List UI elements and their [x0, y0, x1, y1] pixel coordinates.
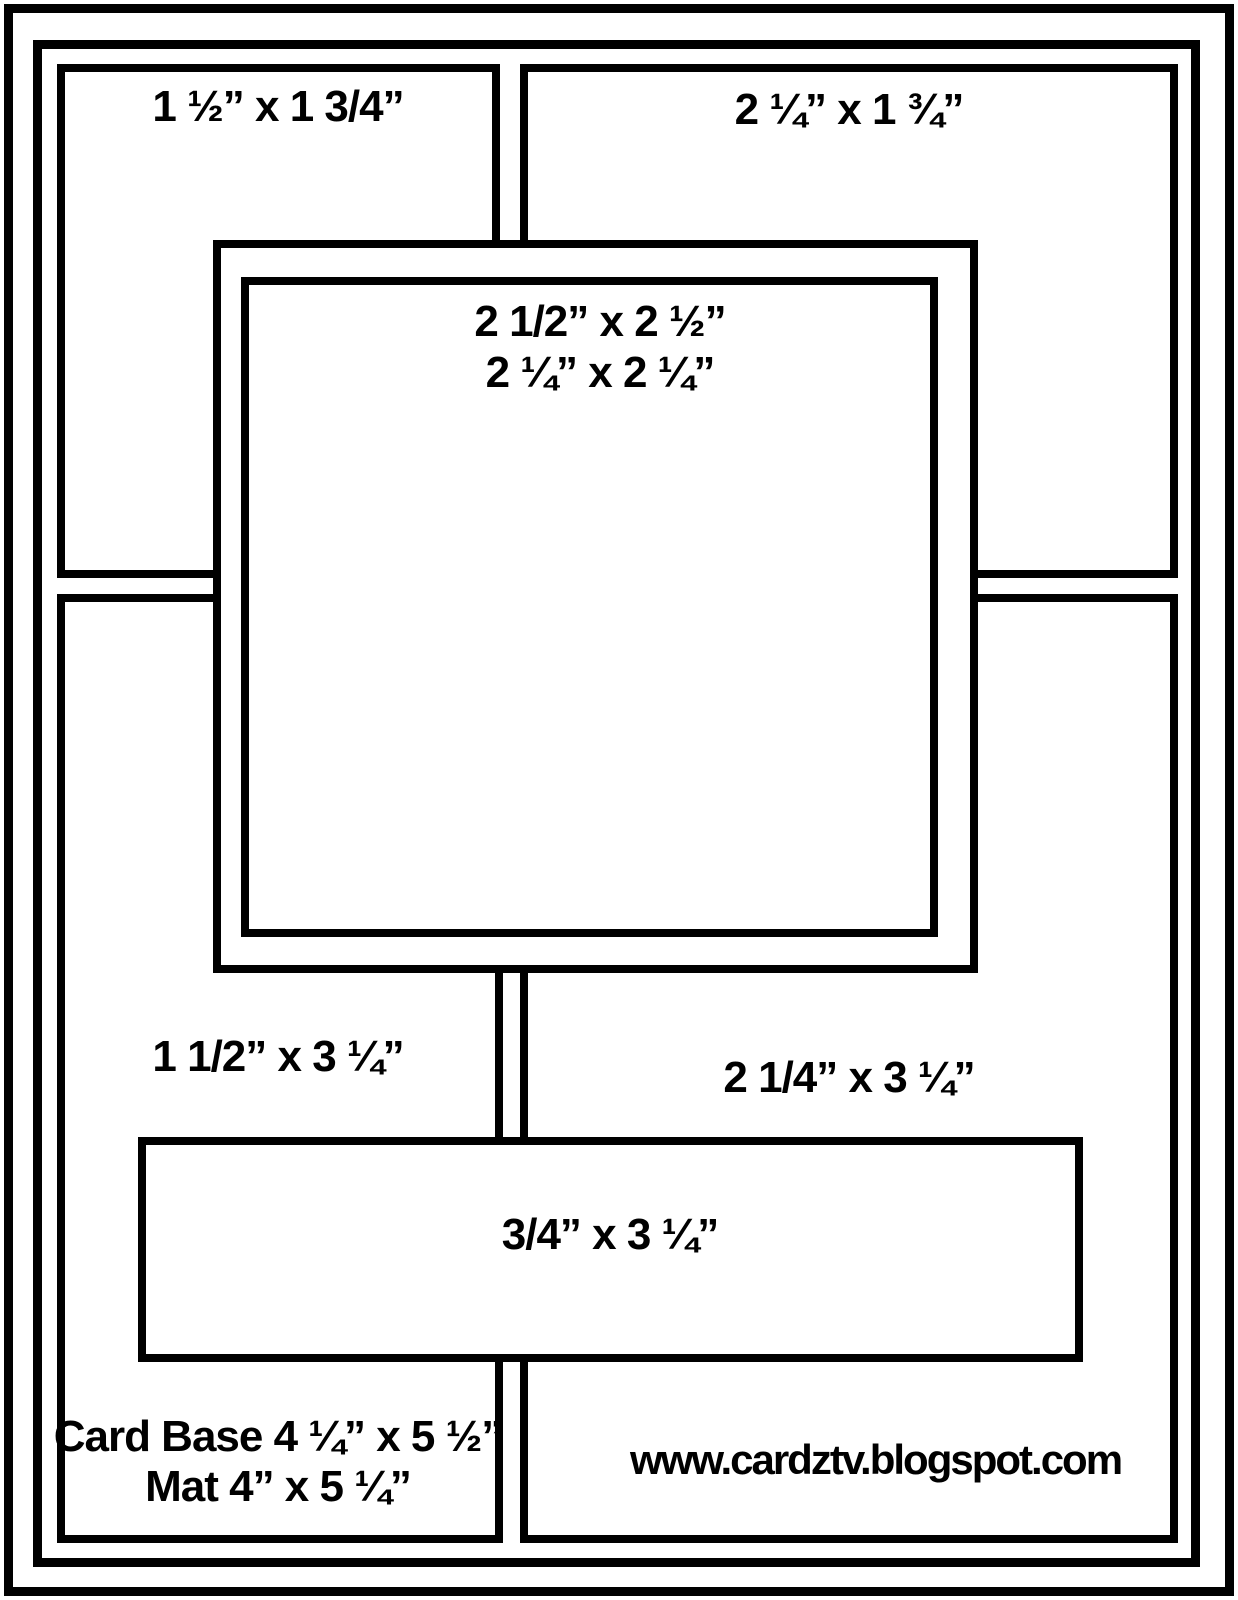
card-base-dimension-line1: Card Base 4 ¼” x 5 ½”: [28, 1412, 528, 1462]
center-square-dimension-line1: 2 1/2” x 2 ½”: [400, 296, 800, 347]
top-right-dimension-label: 2 ¼” x 1 ¾”: [649, 85, 1049, 135]
middle-right-dimension-label: 2 1/4” x 3 ¼”: [649, 1053, 1049, 1103]
banner-dimension-label: 3/4” x 3 ¼”: [410, 1210, 810, 1260]
middle-left-dimension-label: 1 1/2” x 3 ¼”: [78, 1032, 478, 1082]
card-sketch-diagram: 1 ½” x 1 3/4” 2 ¼” x 1 ¾” 2 1/2” x 2 ½” …: [0, 0, 1238, 1600]
card-base-dimension-line2: Mat 4” x 5 ¼”: [28, 1462, 528, 1512]
top-left-dimension-label: 1 ½” x 1 3/4”: [78, 82, 478, 132]
center-square-dimension-label: 2 1/2” x 2 ½” 2 ¼” x 2 ¼”: [400, 296, 800, 398]
card-base-dimension-label: Card Base 4 ¼” x 5 ½” Mat 4” x 5 ¼”: [28, 1412, 528, 1512]
center-square-dimension-line2: 2 ¼” x 2 ¼”: [400, 347, 800, 398]
website-url-text: www.cardztv.blogspot.com: [630, 1435, 1030, 1485]
